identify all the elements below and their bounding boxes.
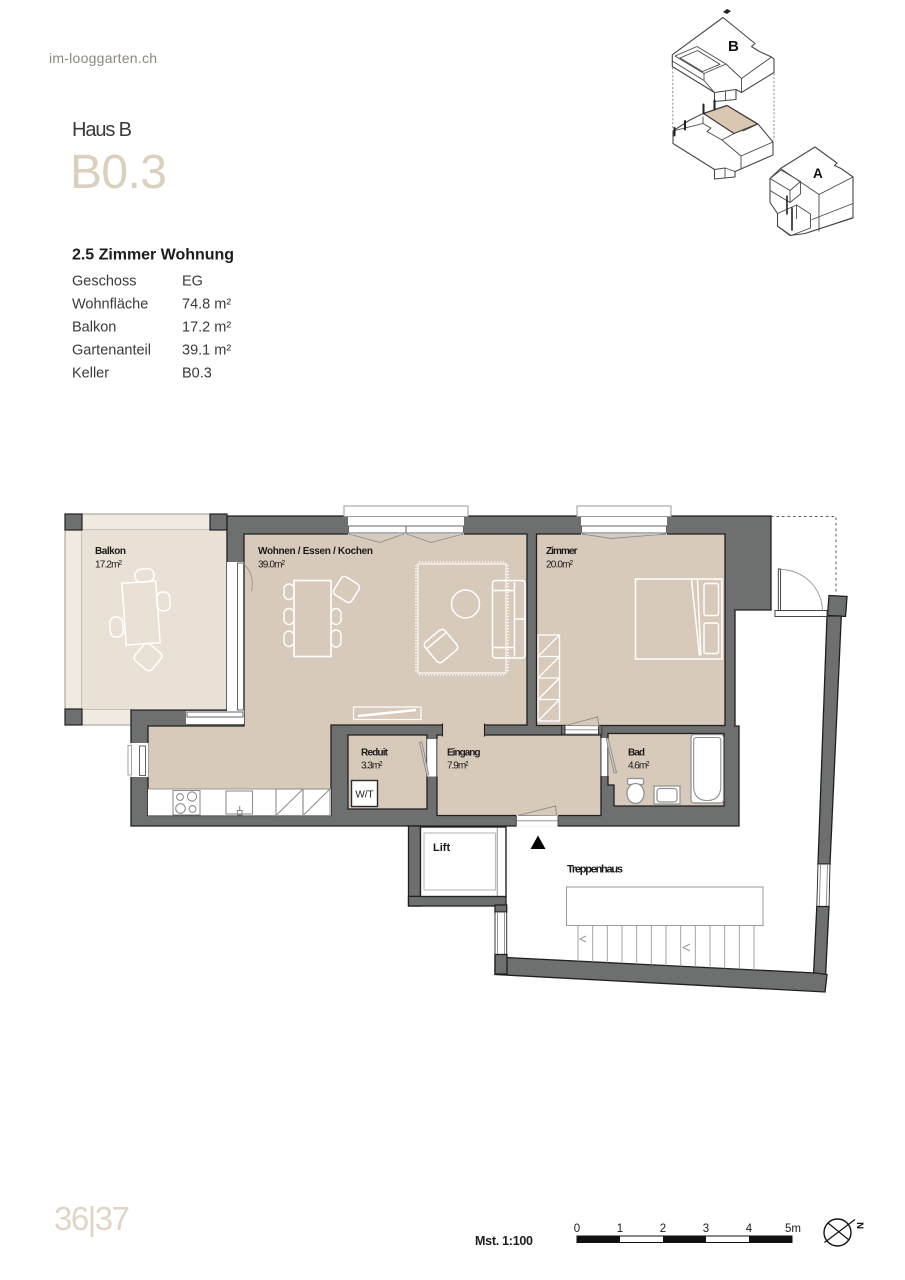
svg-text:2: 2: [660, 1223, 666, 1235]
svg-text:Balkon: Balkon: [72, 320, 116, 336]
svg-text:39.1 m²: 39.1 m²: [182, 343, 231, 359]
svg-text:3: 3: [703, 1223, 709, 1235]
svg-text:Gartenanteil: Gartenanteil: [72, 343, 151, 359]
svg-text:Keller: Keller: [72, 366, 109, 382]
svg-text:Zimmer: Zimmer: [546, 546, 578, 557]
svg-text:B0.3: B0.3: [70, 146, 167, 199]
svg-text:Haus B: Haus B: [72, 119, 132, 141]
svg-text:Bad: Bad: [628, 748, 645, 759]
svg-text:20.0m²: 20.0m²: [546, 560, 574, 571]
svg-text:N: N: [854, 1222, 865, 1229]
svg-text:Mst. 1:100: Mst. 1:100: [475, 1234, 533, 1248]
svg-text:Lift: Lift: [433, 842, 450, 854]
svg-text:B: B: [728, 38, 739, 55]
svg-text:2.5 Zimmer Wohnung: 2.5 Zimmer Wohnung: [72, 247, 234, 264]
svg-text:Wohnen / Essen / Kochen: Wohnen / Essen / Kochen: [258, 546, 373, 557]
svg-text:3.3m²: 3.3m²: [361, 761, 383, 772]
svg-text:0: 0: [574, 1223, 580, 1235]
svg-text:36|37: 36|37: [54, 1200, 130, 1237]
svg-text:4: 4: [746, 1223, 753, 1235]
svg-text:Reduit: Reduit: [361, 748, 389, 759]
svg-text:im-looggarten.ch: im-looggarten.ch: [49, 50, 157, 66]
svg-text:Balkon: Balkon: [95, 546, 126, 557]
svg-text:Wohnfläche: Wohnfläche: [72, 297, 148, 313]
svg-text:EG: EG: [182, 274, 203, 290]
svg-text:W/T: W/T: [355, 790, 373, 801]
svg-text:B0.3: B0.3: [182, 366, 212, 382]
svg-text:A: A: [813, 166, 823, 181]
svg-text:4.6m²: 4.6m²: [628, 761, 650, 772]
svg-text:74.8 m²: 74.8 m²: [182, 297, 231, 313]
svg-text:17.2 m²: 17.2 m²: [182, 320, 231, 336]
svg-text:1: 1: [617, 1223, 623, 1235]
svg-text:17.2m²: 17.2m²: [95, 560, 123, 571]
svg-text:Eingang: Eingang: [447, 748, 481, 759]
svg-text:Treppenhaus: Treppenhaus: [567, 864, 623, 876]
svg-text:Geschoss: Geschoss: [72, 274, 136, 290]
svg-text:7.9m²: 7.9m²: [447, 761, 469, 772]
svg-text:5m: 5m: [785, 1223, 801, 1235]
svg-text:39.0m²: 39.0m²: [258, 560, 286, 571]
